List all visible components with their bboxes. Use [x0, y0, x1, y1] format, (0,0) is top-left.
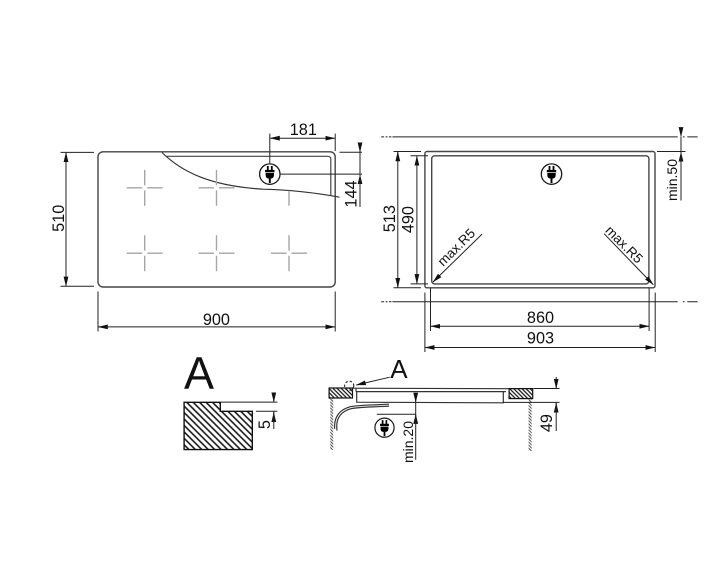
svg-text:510: 510: [50, 205, 68, 232]
svg-text:A: A: [390, 354, 408, 384]
svg-text:490: 490: [399, 206, 417, 233]
svg-text:min.50: min.50: [664, 159, 680, 201]
svg-text:513: 513: [381, 205, 399, 232]
svg-text:min.20: min.20: [400, 421, 416, 463]
svg-text:5: 5: [256, 420, 274, 429]
svg-text:181: 181: [290, 121, 317, 139]
svg-text:900: 900: [203, 311, 230, 329]
svg-text:860: 860: [527, 309, 554, 327]
svg-text:A: A: [184, 348, 214, 399]
svg-text:903: 903: [527, 330, 554, 348]
svg-text:144: 144: [342, 180, 360, 207]
svg-text:49: 49: [538, 414, 556, 432]
